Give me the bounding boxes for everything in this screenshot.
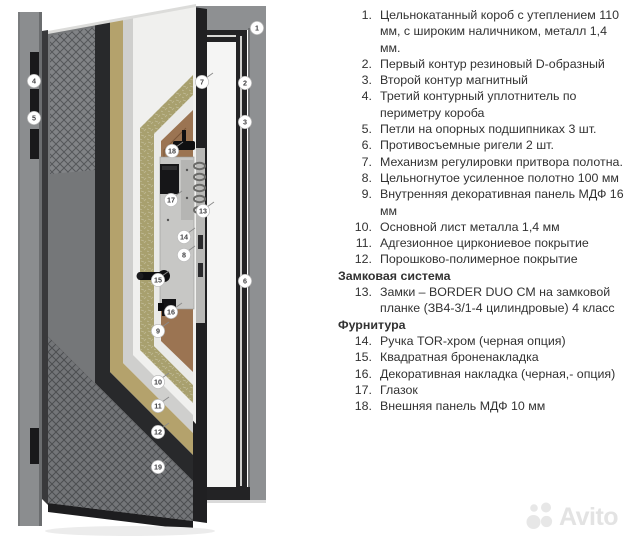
legend-item-number: 11. (330, 235, 380, 251)
svg-text:1: 1 (255, 24, 259, 33)
diagram-marker-6: 6 (238, 274, 251, 287)
legend-item-number: 5. (330, 121, 380, 137)
svg-text:6: 6 (243, 277, 247, 286)
legend-item-number: 8. (330, 170, 380, 186)
legend-item-text: Порошково-полимерное покрытие (380, 251, 628, 267)
avito-watermark: Avito (524, 501, 618, 533)
legend-item-number: 7. (330, 154, 380, 170)
legend-item-number: 3. (330, 72, 380, 88)
leaf-hinge-edge (42, 30, 48, 505)
legend-item-number: 10. (330, 219, 380, 235)
svg-text:7: 7 (200, 78, 204, 87)
hinge-icon (30, 89, 39, 114)
legend-item-text: Цельнокатанный короб с утеплением 110 мм… (380, 7, 628, 56)
legend-item-text: Механизм регулировки притвора полотна. (380, 154, 628, 170)
legend-item: 2.Первый контур резиновый D-образный (330, 56, 628, 72)
avito-logo-icon (524, 501, 556, 533)
floor-shadow (45, 526, 215, 536)
legend-item-text: Ручка TOR-хром (черная опция) (380, 333, 628, 349)
legend-item: 5.Петли на опорных подшипниках 3 шт. (330, 121, 628, 137)
svg-text:5: 5 (32, 114, 36, 123)
svg-text:17: 17 (167, 196, 175, 205)
legend-item-text: Первый контур резиновый D-образный (380, 56, 628, 72)
svg-text:14: 14 (180, 233, 188, 242)
legend-item-text: Второй контур магнитный (380, 72, 628, 88)
legend-item-number: 13. (330, 284, 380, 317)
legend-item-text: Внешняя панель МДФ 10 мм (380, 398, 628, 414)
legend-item-number: 14. (330, 333, 380, 349)
legend-section-header: Фурнитура (338, 317, 628, 333)
legend-item-number: 18. (330, 398, 380, 414)
legend-item-number: 17. (330, 382, 380, 398)
svg-text:19: 19 (154, 463, 162, 472)
svg-text:4: 4 (32, 77, 36, 86)
svg-text:12: 12 (154, 428, 162, 437)
svg-text:13: 13 (199, 207, 207, 216)
legend-item: 17.Глазок (330, 382, 628, 398)
legend-item: 15.Квадратная броненакладка (330, 349, 628, 365)
door-cutaway-diagram: 12345678910111213141516171819 (0, 0, 320, 540)
legend-item: 13.Замки – BORDER DUO CM на замковой пла… (330, 284, 628, 317)
diagram-marker-1: 1 (250, 21, 263, 34)
legend-item-text: Цельногнутое усиленное полотно 100 мм (380, 170, 628, 186)
svg-text:9: 9 (156, 327, 160, 336)
legend-item-text: Третий контурный уплотнитель по периметр… (380, 88, 628, 121)
legend-item: 11.Адгезионное циркониевое покрытие (330, 235, 628, 251)
legend-item-text: Декоративная накладка (черная,- опция) (380, 366, 628, 382)
svg-text:10: 10 (154, 378, 162, 387)
door-leaf (42, 4, 215, 536)
legend-section-header: Замковая система (338, 268, 628, 284)
legend-item-number: 12. (330, 251, 380, 267)
diagram-marker-4: 4 (27, 74, 40, 87)
frame-right-band (250, 6, 266, 502)
legend-item: 6.Противосъемные ригели 2 шт. (330, 137, 628, 153)
svg-text:2: 2 (243, 79, 247, 88)
legend-item-number: 16. (330, 366, 380, 382)
legend-item: 9.Внутренняя декоративная панель МДФ 16 … (330, 186, 628, 219)
legend-item-number: 4. (330, 88, 380, 121)
hinge-icon (30, 52, 39, 77)
legend-item: 3.Второй контур магнитный (330, 72, 628, 88)
diagram-marker-5: 5 (27, 111, 40, 124)
legend-item: 1.Цельнокатанный короб с утеплением 110 … (330, 7, 628, 56)
svg-text:18: 18 (168, 147, 176, 156)
svg-text:11: 11 (154, 402, 162, 411)
legend-item: 8.Цельногнутое усиленное полотно 100 мм (330, 170, 628, 186)
legend-item-number: 9. (330, 186, 380, 219)
legend-item: 7.Механизм регулировки притвора полотна. (330, 154, 628, 170)
legend-item-number: 2. (330, 56, 380, 72)
legend-item-text: Замки – BORDER DUO CM на замковой планке… (380, 284, 628, 317)
legend-item: 18.Внешняя панель МДФ 10 мм (330, 398, 628, 414)
svg-text:15: 15 (154, 276, 162, 285)
legend-item-text: Основной лист металла 1,4 мм (380, 219, 628, 235)
svg-text:8: 8 (182, 251, 186, 260)
diagram-marker-2: 2 (238, 76, 251, 89)
legend-item: 4.Третий контурный уплотнитель по периме… (330, 88, 628, 121)
legend-item-text: Петли на опорных подшипниках 3 шт. (380, 121, 628, 137)
diagram-marker-3: 3 (238, 115, 251, 128)
legend-item-text: Квадратная броненакладка (380, 349, 628, 365)
legend-item-number: 6. (330, 137, 380, 153)
frame-opening (205, 42, 236, 487)
legend-item-text: Глазок (380, 382, 628, 398)
legend-item-text: Внутренняя декоративная панель МДФ 16 мм (380, 186, 628, 219)
legend-item-text: Адгезионное циркониевое покрытие (380, 235, 628, 251)
hinge-icon (30, 129, 39, 159)
legend-item: 16.Декоративная накладка (черная,- опция… (330, 366, 628, 382)
frame-sill (205, 487, 250, 500)
parts-legend: 1.Цельнокатанный короб с утеплением 110 … (330, 7, 628, 414)
svg-text:16: 16 (167, 308, 175, 317)
legend-item-number: 15. (330, 349, 380, 365)
legend-item: 10.Основной лист металла 1,4 мм (330, 219, 628, 235)
legend-item: 12.Порошково-полимерное покрытие (330, 251, 628, 267)
hinge-icon (30, 428, 39, 464)
legend-item-text: Противосъемные ригели 2 шт. (380, 137, 628, 153)
watermark-text: Avito (559, 503, 618, 532)
svg-text:3: 3 (243, 118, 247, 127)
legend-item-number: 1. (330, 7, 380, 56)
exterior-pattern-upper (50, 27, 95, 174)
legend-item: 14.Ручка TOR-хром (черная опция) (330, 333, 628, 349)
